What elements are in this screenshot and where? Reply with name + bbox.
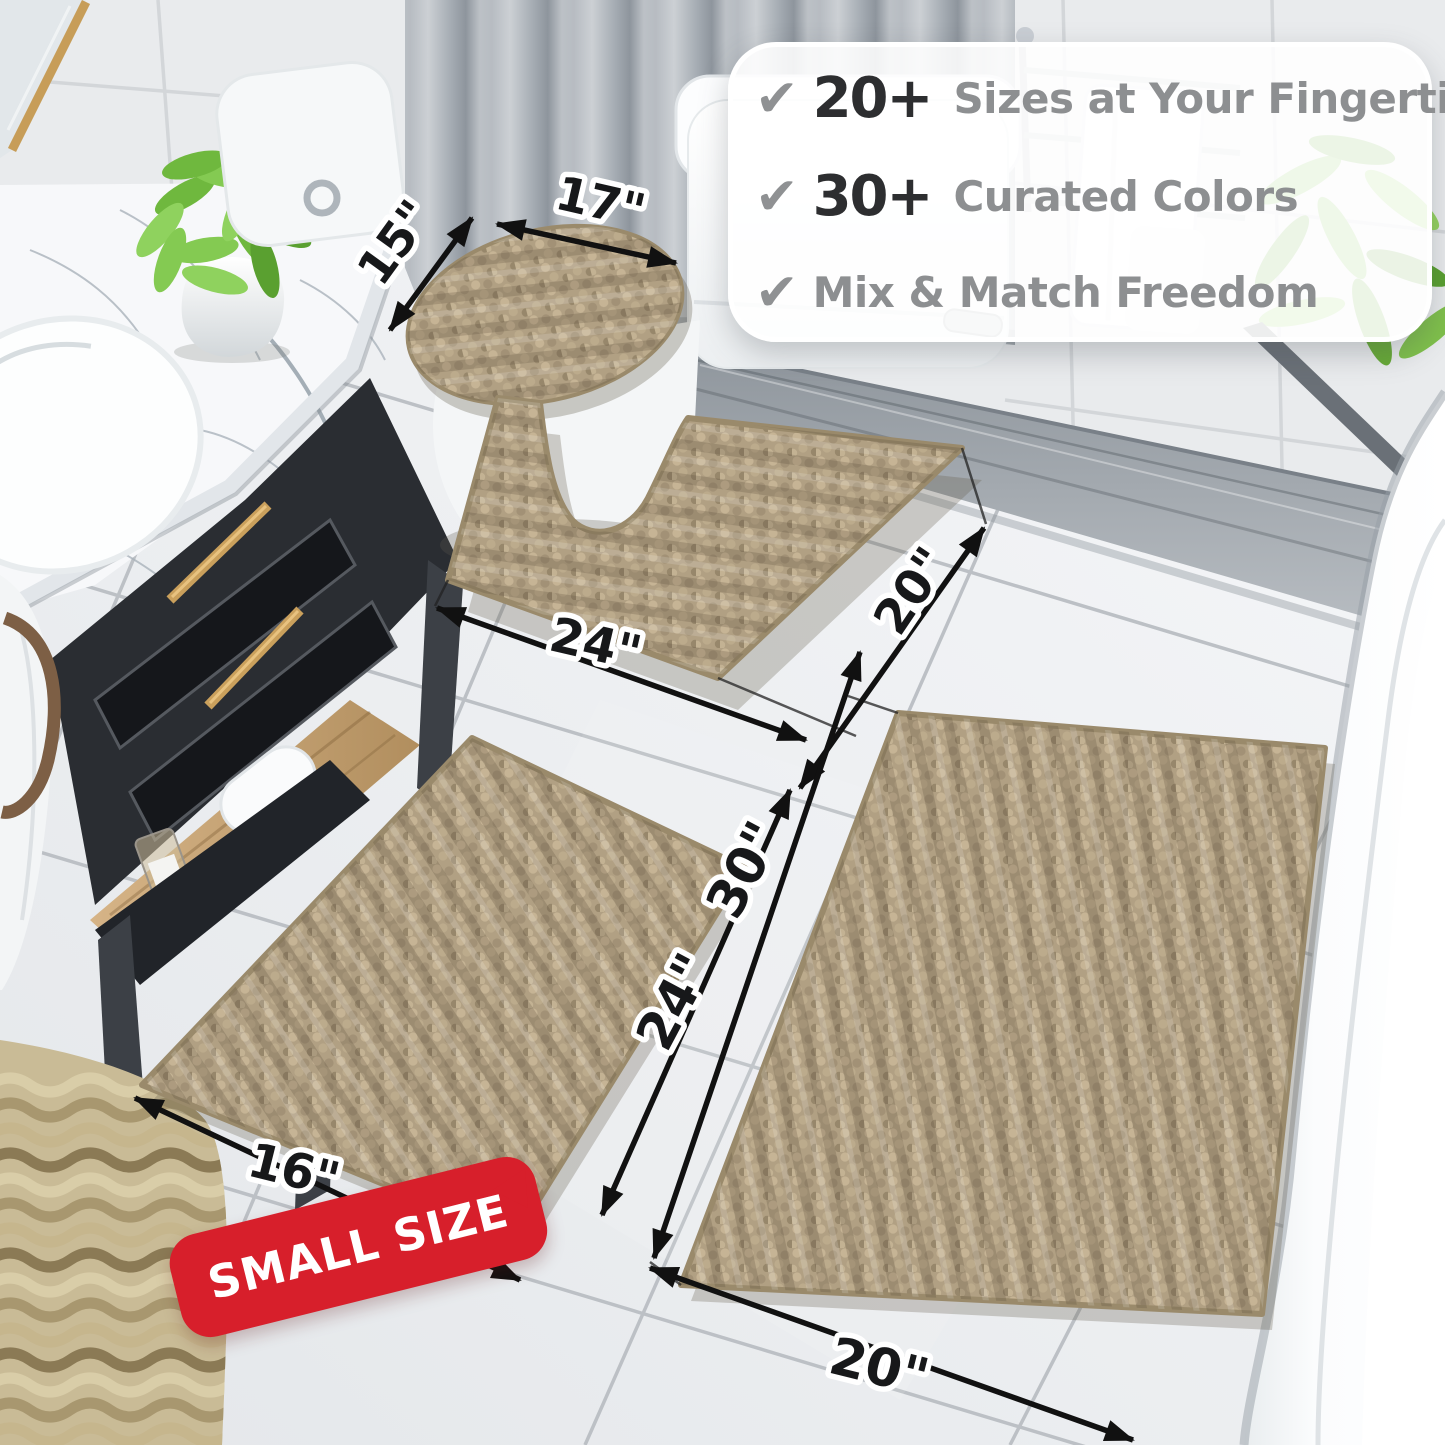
checkmark-icon: ✔: [755, 73, 799, 125]
checkmark-icon: ✔: [755, 171, 799, 223]
checkmark-icon: ✔: [755, 267, 799, 319]
feature-count: 20+: [813, 71, 932, 127]
product-image: 17" 15" 24" 20" 30" 24" 16" 20" ✔ 20+ Si…: [0, 0, 1445, 1445]
feature-item: ✔ 30+ Curated Colors: [749, 169, 1403, 225]
feature-count: 30+: [813, 169, 932, 225]
feature-label: Curated Colors: [953, 176, 1298, 218]
feature-item: ✔ 20+ Sizes at Your Fingertips: [749, 71, 1403, 127]
feature-item: ✔ Mix & Match Freedom: [749, 267, 1403, 319]
feature-label: Sizes at Your Fingertips: [953, 78, 1445, 120]
features-callout: ✔ 20+ Sizes at Your Fingertips ✔ 30+ Cur…: [728, 42, 1432, 342]
feature-label: Mix & Match Freedom: [813, 272, 1319, 314]
